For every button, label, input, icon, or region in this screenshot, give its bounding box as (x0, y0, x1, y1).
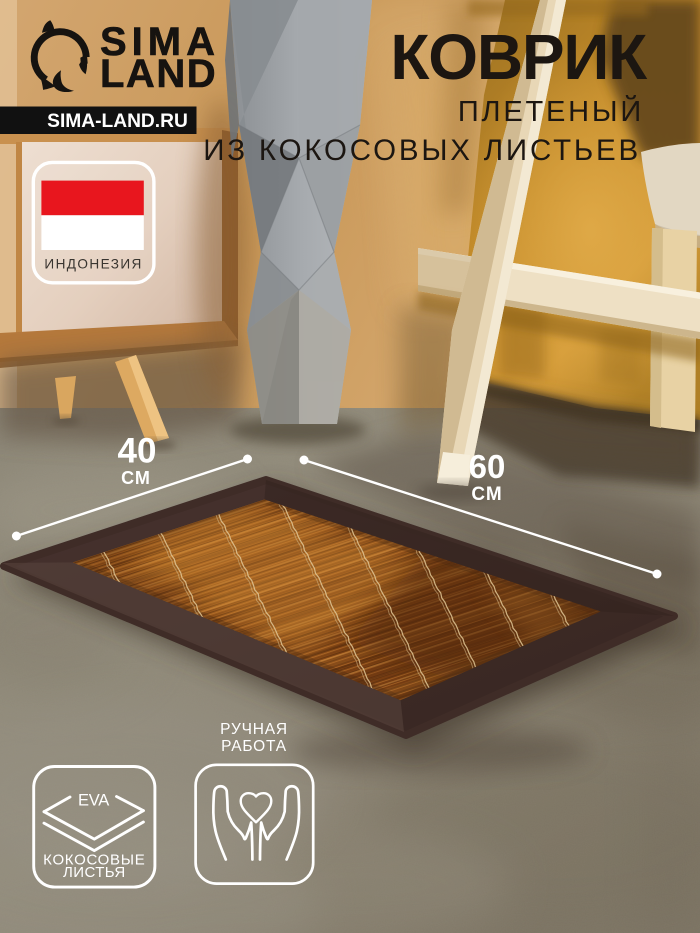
svg-text:СМ: СМ (471, 484, 502, 505)
svg-text:EVA: EVA (78, 792, 109, 810)
svg-text:60: 60 (469, 448, 506, 485)
svg-text:ИЗ КОКОСОВЫХ ЛИСТЬЕВ: ИЗ КОКОСОВЫХ ЛИСТЬЕВ (203, 134, 641, 167)
svg-text:ЛИСТЬЯ: ЛИСТЬЯ (63, 864, 126, 881)
svg-text:РАБОТА: РАБОТА (221, 738, 287, 755)
svg-text:КОВРИК: КОВРИК (390, 21, 648, 93)
svg-text:LAND: LAND (100, 52, 217, 96)
svg-text:РУЧНАЯ: РУЧНАЯ (220, 721, 288, 738)
svg-text:ИНДОНЕЗИЯ: ИНДОНЕЗИЯ (44, 257, 142, 272)
svg-text:SIMA-LAND.RU: SIMA-LAND.RU (47, 111, 188, 132)
svg-text:ПЛЕТЕНЫЙ: ПЛЕТЕНЫЙ (458, 94, 644, 128)
svg-text:40: 40 (118, 432, 157, 471)
svg-text:СМ: СМ (121, 468, 151, 488)
